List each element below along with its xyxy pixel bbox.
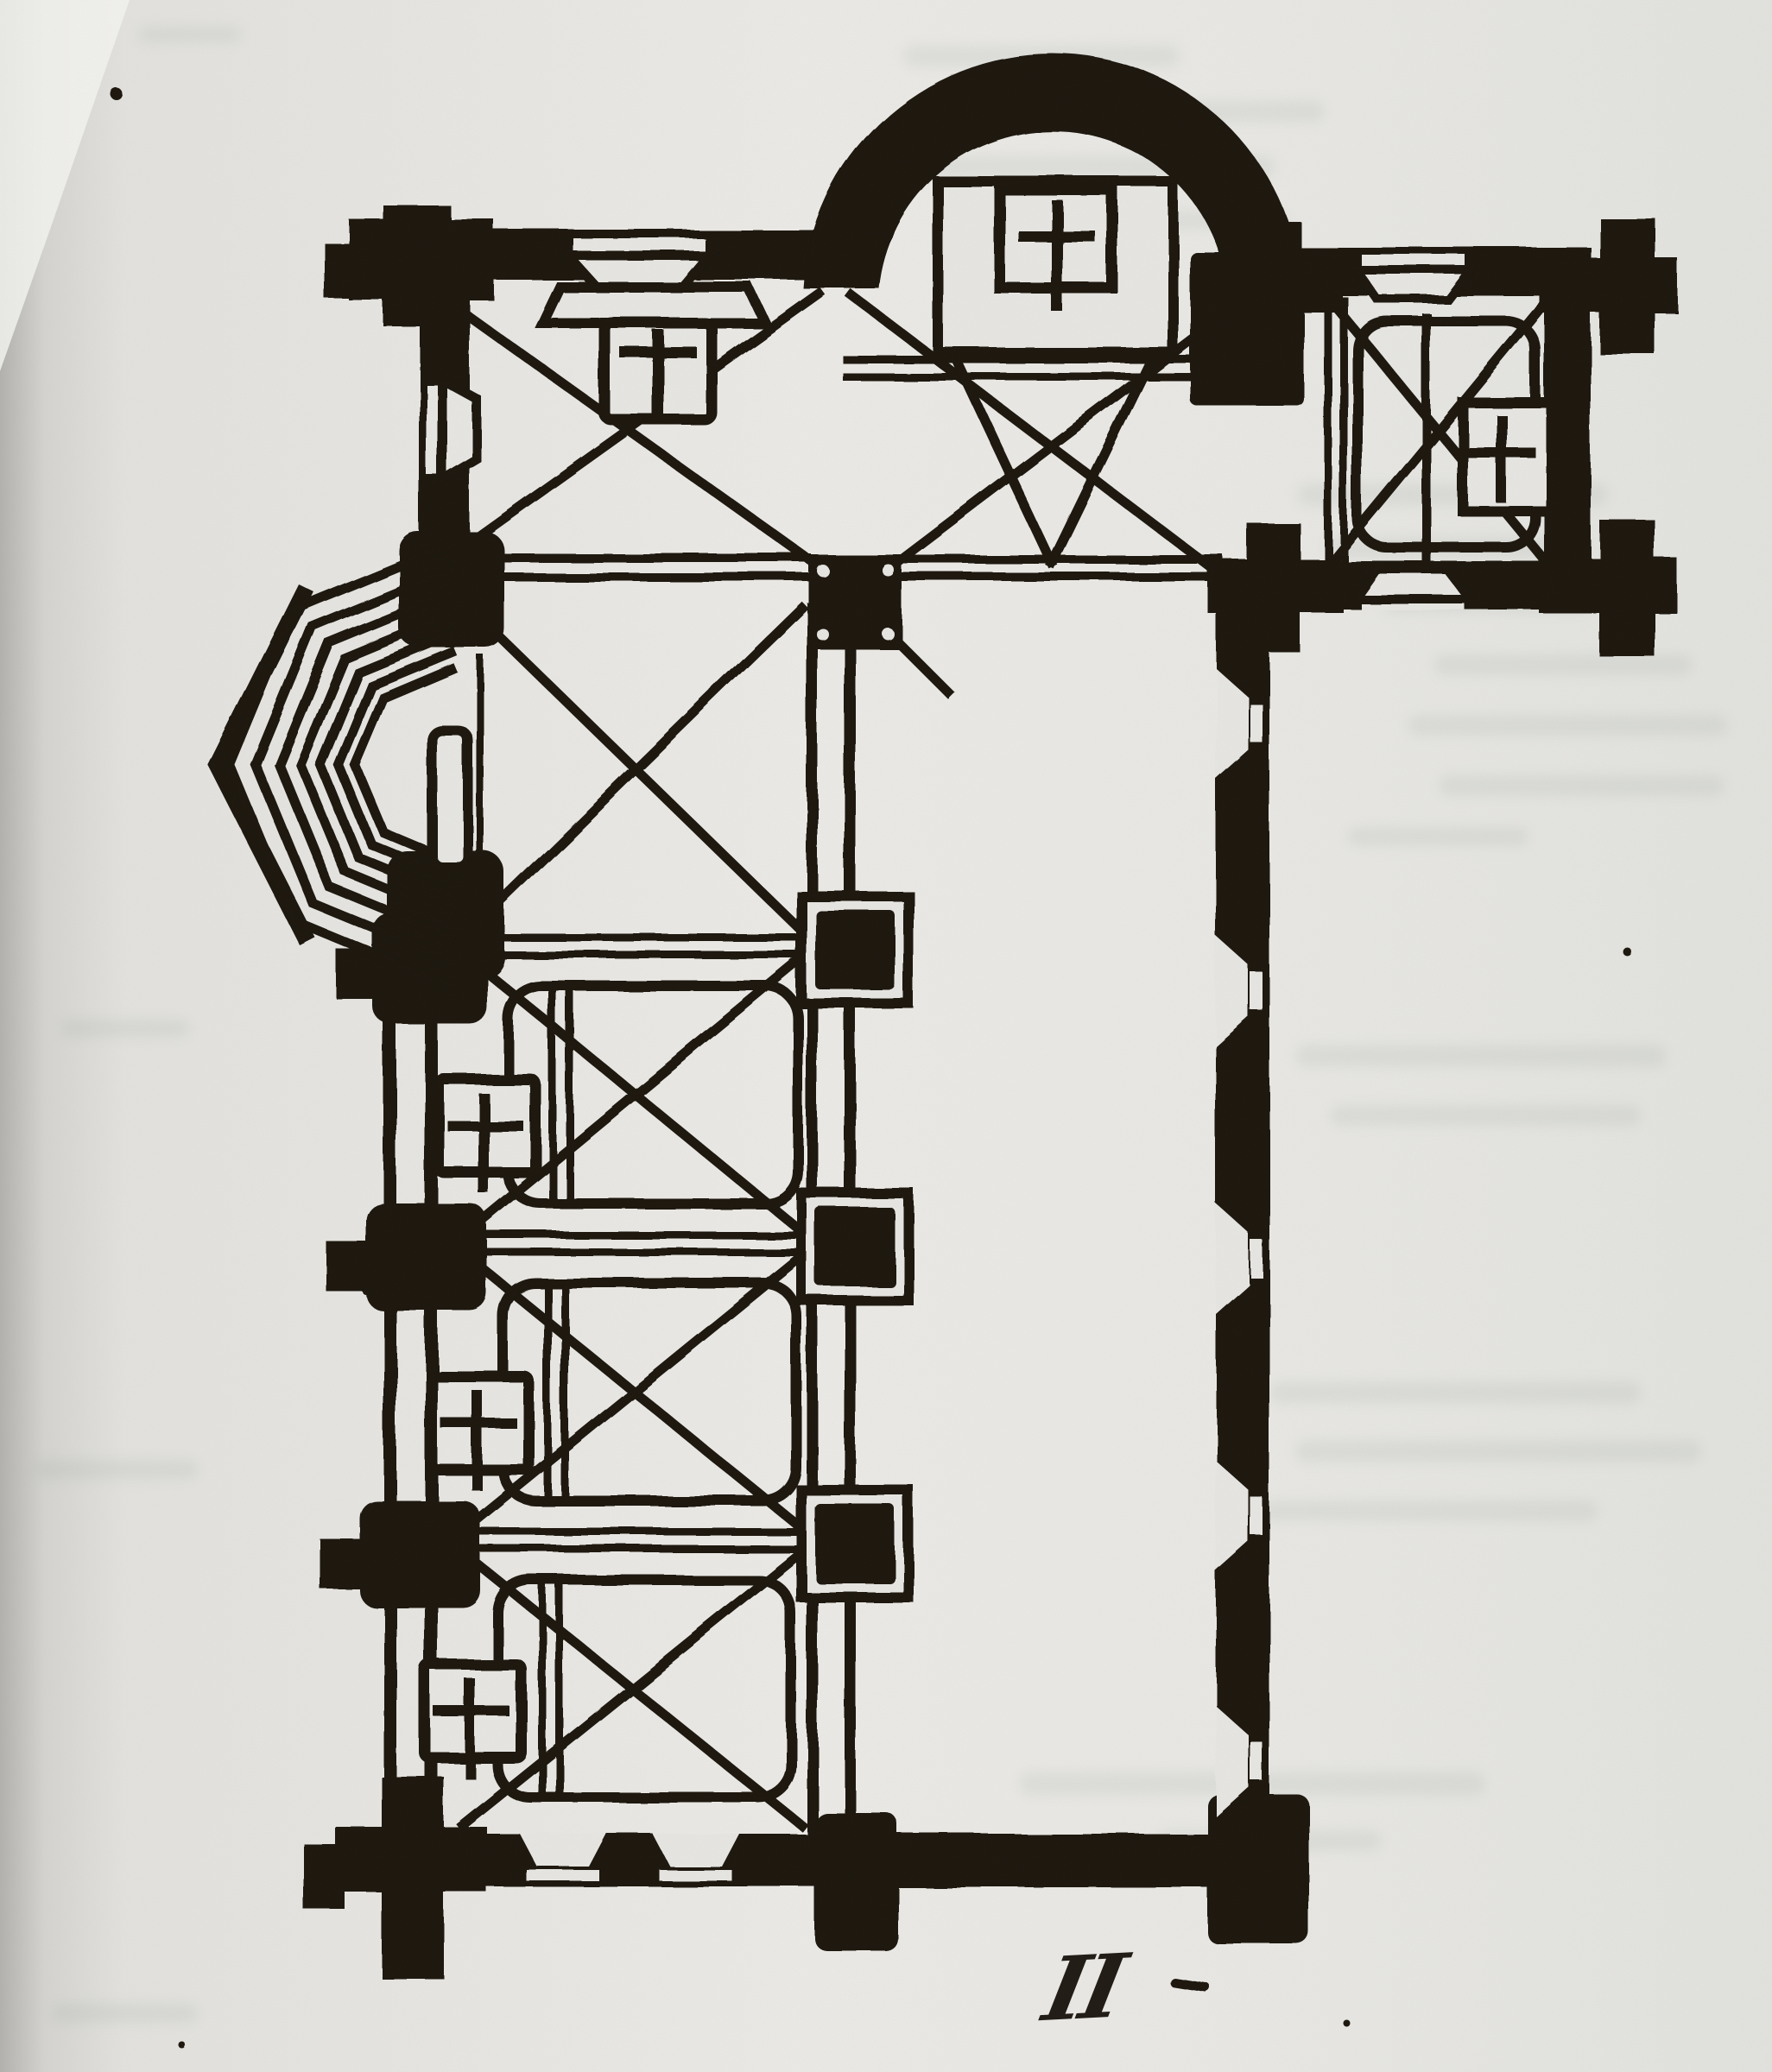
paper-grain <box>0 0 1772 2072</box>
church-floor-plan <box>0 0 1772 2072</box>
scanned-book-page: II <box>0 0 1772 2072</box>
